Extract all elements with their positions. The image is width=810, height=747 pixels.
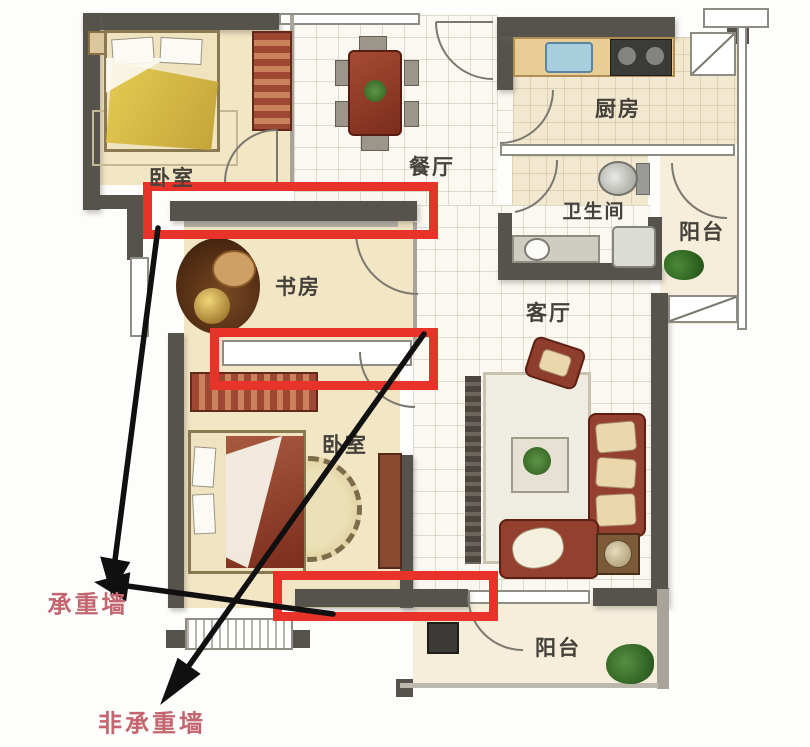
label-non-load-bearing-wall: 非承重墙 <box>98 704 206 739</box>
label-load-bearing-wall: 承重墙 <box>48 585 129 620</box>
floor-plan: 卧室 餐厅 厨房 卫生间 阳台 书房 客厅 卧室 阳台 承重墙 非承重墙 <box>0 0 810 747</box>
annotation-arrow-layer <box>0 0 810 747</box>
arrowhead-down-left <box>166 662 196 697</box>
arrow-middle-wall-to-non-load-bearing <box>188 334 424 667</box>
arrow-top-wall-to-load-bearing <box>115 228 158 560</box>
